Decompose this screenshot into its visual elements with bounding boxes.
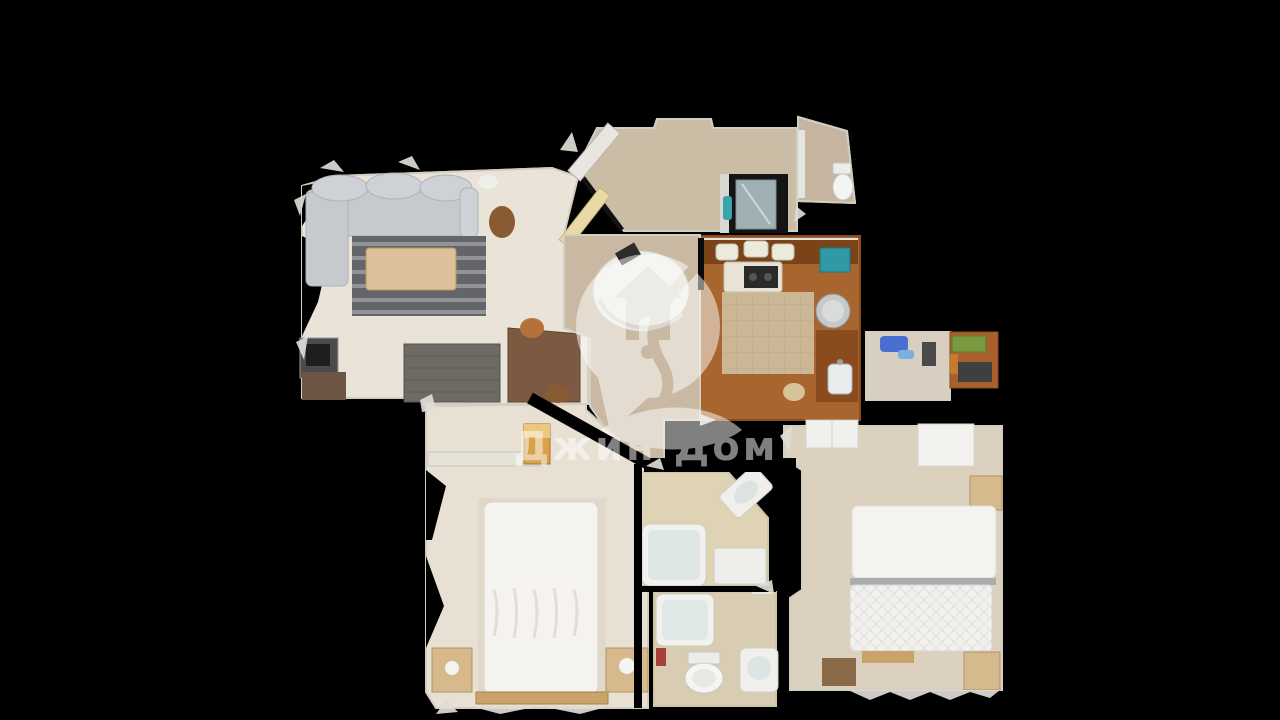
nightstand <box>964 652 1000 690</box>
kitchen-counter-right <box>816 330 858 402</box>
teal-towel <box>723 196 732 220</box>
blue-cloth <box>880 336 908 352</box>
footboard <box>862 651 914 663</box>
lamp <box>619 658 635 674</box>
bedroom-right <box>784 420 1002 690</box>
sink <box>740 648 778 692</box>
sink <box>828 364 852 394</box>
living-room <box>300 168 588 404</box>
light-blue-item <box>898 350 914 359</box>
floorplan-canvas: Джин Дом <box>0 0 1280 720</box>
cooktop <box>744 266 778 288</box>
footboard <box>476 692 608 704</box>
round-sink-table <box>816 294 850 328</box>
nightstand <box>432 648 472 692</box>
closet <box>806 420 858 448</box>
white-dresser <box>918 424 974 466</box>
single-bed-top <box>852 506 996 578</box>
kitchen <box>700 236 860 420</box>
bathtub <box>642 524 706 586</box>
dark-pile <box>958 362 992 382</box>
double-bed <box>476 498 608 704</box>
armchair <box>489 206 515 238</box>
faucet <box>837 359 843 365</box>
green-box <box>952 336 986 352</box>
single-bed-bottom <box>850 585 992 651</box>
floorplan-screenshot: Джин Дом <box>0 0 1280 720</box>
sideboard <box>302 372 346 400</box>
dark-item <box>922 342 936 366</box>
orange-item <box>950 354 958 374</box>
shower-room <box>720 174 788 233</box>
bathtub <box>656 594 714 646</box>
bench <box>822 658 856 686</box>
mattress <box>484 502 598 694</box>
stool <box>783 383 805 401</box>
toilet <box>833 163 853 200</box>
lamp <box>445 661 459 675</box>
toilet <box>685 652 723 693</box>
red-towel <box>656 648 666 666</box>
bathroom-upper <box>640 465 774 586</box>
wall-segment <box>640 586 776 592</box>
coffee-table <box>366 248 456 290</box>
floor-lamp <box>478 175 498 189</box>
dining-table <box>404 344 500 402</box>
desk-chair <box>547 385 569 403</box>
brand-watermark-text: Джин Дом <box>514 424 779 470</box>
desk-chair <box>520 318 544 338</box>
wc-door <box>798 130 805 198</box>
bathroom-lower <box>654 588 778 706</box>
teal-appliance <box>820 248 850 272</box>
bed-frame-rail <box>850 578 996 585</box>
vanity-unit <box>714 548 766 584</box>
wall-segment <box>634 464 642 708</box>
nightstand <box>970 476 1002 510</box>
wc <box>798 117 855 203</box>
